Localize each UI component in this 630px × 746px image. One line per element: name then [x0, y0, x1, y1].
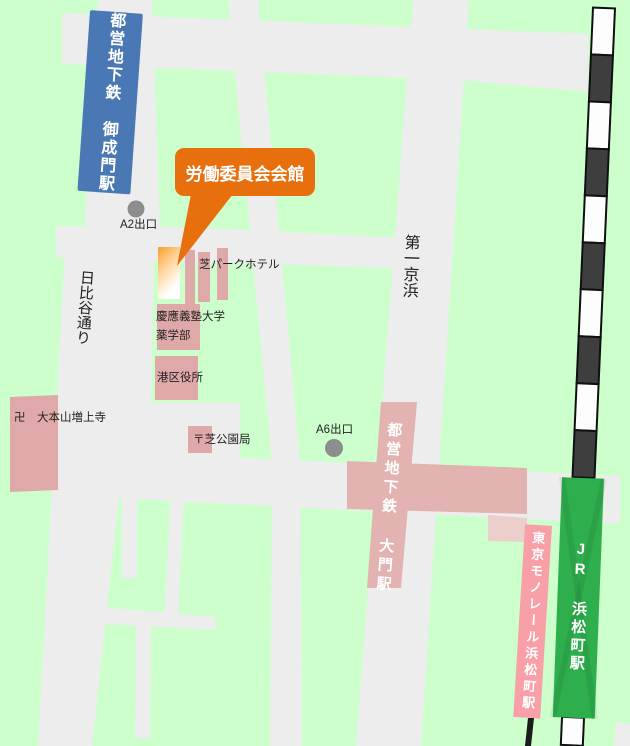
- railway-dash: [561, 717, 584, 746]
- shiba-park-hotel-label: 芝パークホテル: [199, 259, 280, 272]
- road-bottom-horizontal: [56, 449, 620, 524]
- railway-dash: [573, 430, 597, 478]
- a6-exit-dot: [325, 439, 343, 457]
- railway-dash: [581, 242, 605, 290]
- railway-dash: [589, 54, 613, 102]
- railway-dash: [585, 148, 609, 196]
- road-alley-vertical-lower: [135, 621, 151, 738]
- a6-exit-label: A6出口: [316, 424, 353, 437]
- zojoji-temple-label: 卍 大本山増上寺: [14, 412, 106, 425]
- labor-commission-building-highlight: [158, 247, 180, 299]
- destination-callout: 労働委員会会館: [175, 148, 315, 196]
- road-alley-stub-1: [122, 492, 137, 578]
- hotel-building-strip-1: [185, 250, 195, 305]
- road-alley-vertical-upper: [164, 492, 184, 621]
- hotel-building-strip-3: [217, 248, 228, 300]
- access-map: 労働委員会会館 都営地下鉄 御成門駅 都営地下鉄 大門駅 東京モノレール浜松町駅…: [0, 0, 630, 746]
- railway-dash: [587, 101, 611, 149]
- a2-exit-label: A2出口: [120, 219, 157, 232]
- railway-dash: [591, 8, 615, 56]
- railway-dash: [583, 195, 607, 243]
- monorail-track-line: [525, 718, 534, 746]
- railway-dash: [577, 336, 601, 384]
- minato-ward-office-label: 港区役所: [157, 372, 203, 385]
- destination-callout-label: 労働委員会会館: [186, 160, 305, 185]
- keio-university-label: 慶應義塾大学: [156, 311, 225, 324]
- railway-dash: [575, 383, 599, 431]
- road-post-office-area: [110, 403, 240, 460]
- road-alley-horizontal: [88, 606, 215, 630]
- zojoji-temple-building: [10, 395, 58, 492]
- a2-exit-dot: [128, 201, 145, 218]
- road-fragment-bottom-right: [614, 722, 630, 746]
- road-middle-vertical: [228, 0, 302, 746]
- road-daiichi-keihin: [356, 0, 469, 746]
- shiba-koen-post-office-label: 〒芝公園局: [193, 434, 251, 447]
- keio-pharmacy-dept-label: 薬学部: [156, 330, 191, 343]
- railway-dash: [579, 289, 603, 337]
- daimon-station-pale-extension: [488, 515, 527, 542]
- daiichi-keihin-street-label: 第一京浜: [394, 229, 423, 304]
